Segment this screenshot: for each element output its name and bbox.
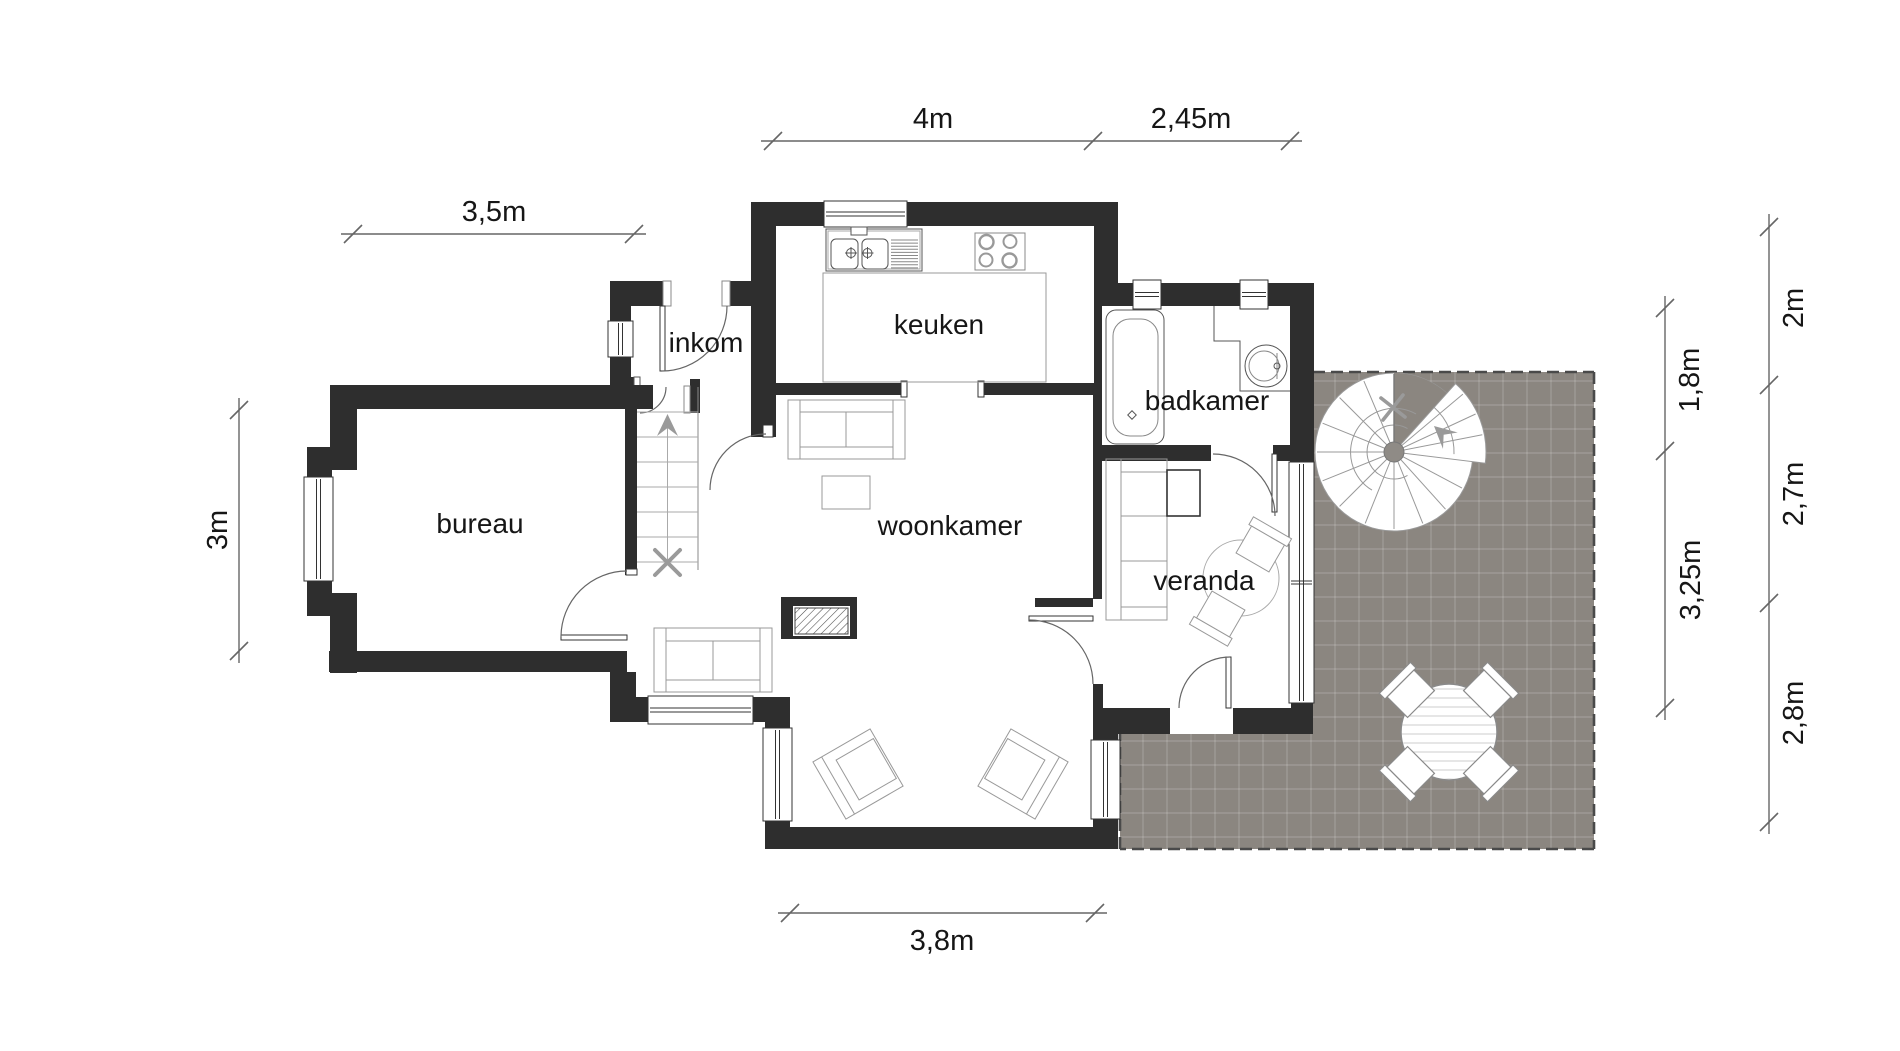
svg-text:4m: 4m xyxy=(913,103,953,135)
svg-text:3,5m: 3,5m xyxy=(462,196,526,228)
svg-text:veranda: veranda xyxy=(1153,565,1255,596)
svg-text:bureau: bureau xyxy=(436,508,523,539)
svg-text:woonkamer: woonkamer xyxy=(877,510,1023,541)
svg-text:badkamer: badkamer xyxy=(1145,385,1270,416)
svg-text:inkom: inkom xyxy=(669,327,744,358)
svg-text:2,45m: 2,45m xyxy=(1151,103,1232,135)
svg-text:3m: 3m xyxy=(202,510,234,550)
svg-text:2m: 2m xyxy=(1778,288,1810,328)
svg-text:2,7m: 2,7m xyxy=(1778,462,1810,526)
svg-text:3,25m: 3,25m xyxy=(1675,540,1707,621)
svg-text:2,8m: 2,8m xyxy=(1778,681,1810,745)
svg-text:3,8m: 3,8m xyxy=(910,925,974,957)
svg-text:keuken: keuken xyxy=(894,309,984,340)
svg-text:1,8m: 1,8m xyxy=(1674,348,1706,412)
